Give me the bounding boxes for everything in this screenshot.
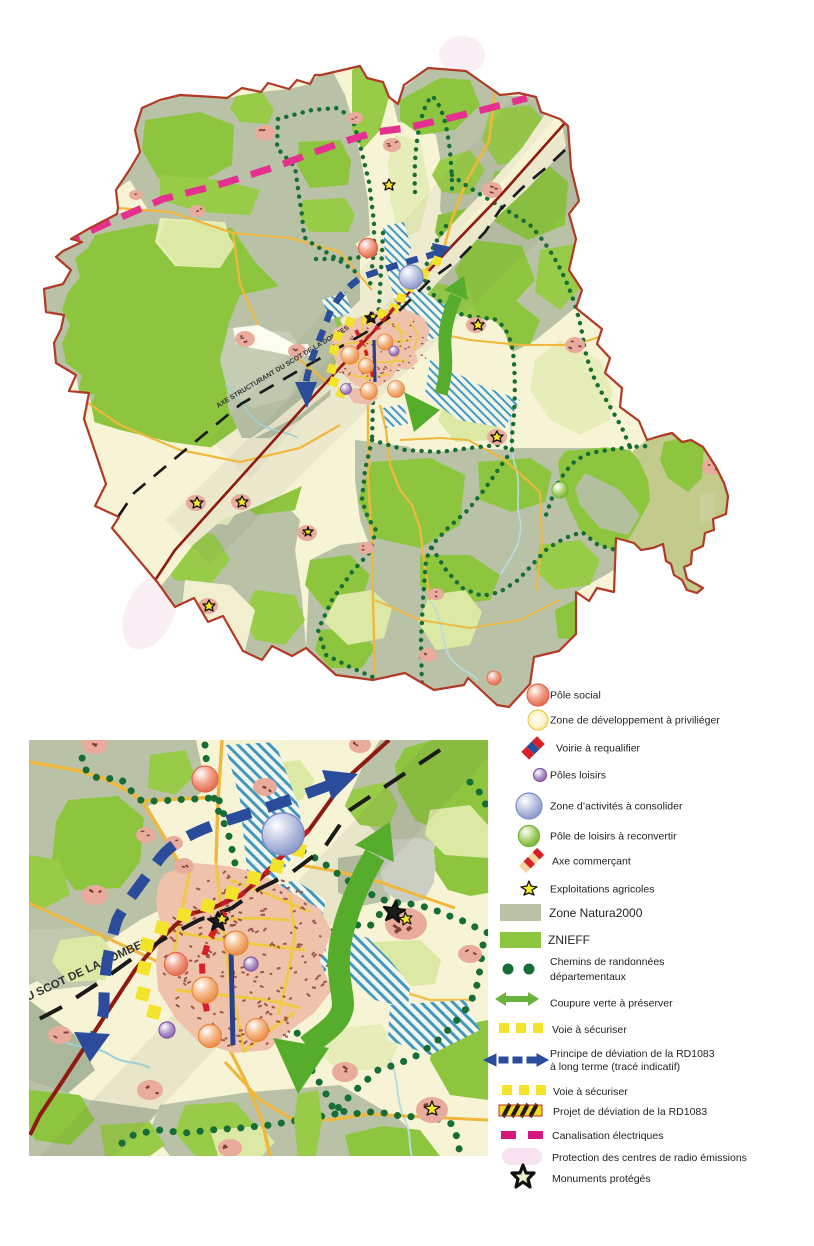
svg-text:Zone d’activités à consolider: Zone d’activités à consolider — [550, 801, 683, 813]
svg-text:départementaux: départementaux — [550, 971, 627, 983]
svg-text:Canalisation électriques: Canalisation électriques — [552, 1130, 663, 1142]
svg-text:ZNIEFF: ZNIEFF — [548, 933, 590, 947]
svg-text:Zone Natura2000: Zone Natura2000 — [549, 906, 643, 920]
svg-text:Protection des centres de radi: Protection des centres de radio émission… — [552, 1152, 747, 1164]
svg-text:Voie à sécuriser: Voie à sécuriser — [552, 1024, 627, 1036]
svg-text:Principe de déviation de la RD: Principe de déviation de la RD1083 — [550, 1048, 715, 1060]
svg-text:Pôle de loisirs à reconvertir: Pôle de loisirs à reconvertir — [550, 831, 677, 843]
svg-text:Zone de développement à privil: Zone de développement à priviliéger — [550, 715, 720, 727]
svg-text:Pôle social: Pôle social — [550, 690, 601, 702]
svg-text:Chemins de randonnées: Chemins de randonnées — [550, 956, 664, 968]
svg-text:à long terme (tracé indicatif: à long terme (tracé indicatif) — [550, 1061, 680, 1073]
svg-text:Exploitations agricoles: Exploitations agricoles — [550, 884, 654, 896]
svg-text:Projet de déviation de la RD10: Projet de déviation de la RD1083 — [553, 1106, 707, 1118]
svg-text:Voie à sécuriser: Voie à sécuriser — [553, 1086, 628, 1098]
svg-text:Voirie à requalifier: Voirie à requalifier — [556, 743, 641, 755]
svg-text:Monuments protégés: Monuments protégés — [552, 1173, 651, 1185]
svg-text:Coupure verte à préserver: Coupure verte à préserver — [550, 998, 673, 1010]
svg-text:Axe commerçant: Axe commerçant — [552, 856, 631, 868]
svg-text:Pôles loisirs: Pôles loisirs — [550, 770, 606, 782]
